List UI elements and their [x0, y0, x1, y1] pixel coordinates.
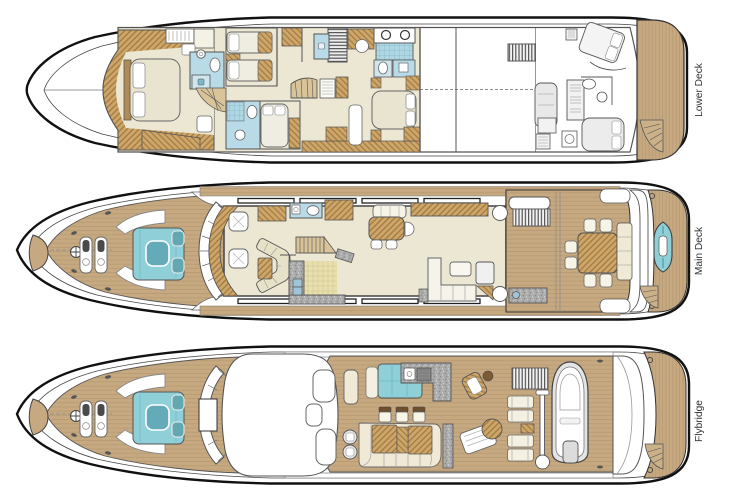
svg-text:Main Deck: Main Deck: [694, 226, 705, 275]
svg-text:Lower Deck: Lower Deck: [694, 62, 705, 117]
svg-text:Flybridge: Flybridge: [694, 400, 705, 442]
